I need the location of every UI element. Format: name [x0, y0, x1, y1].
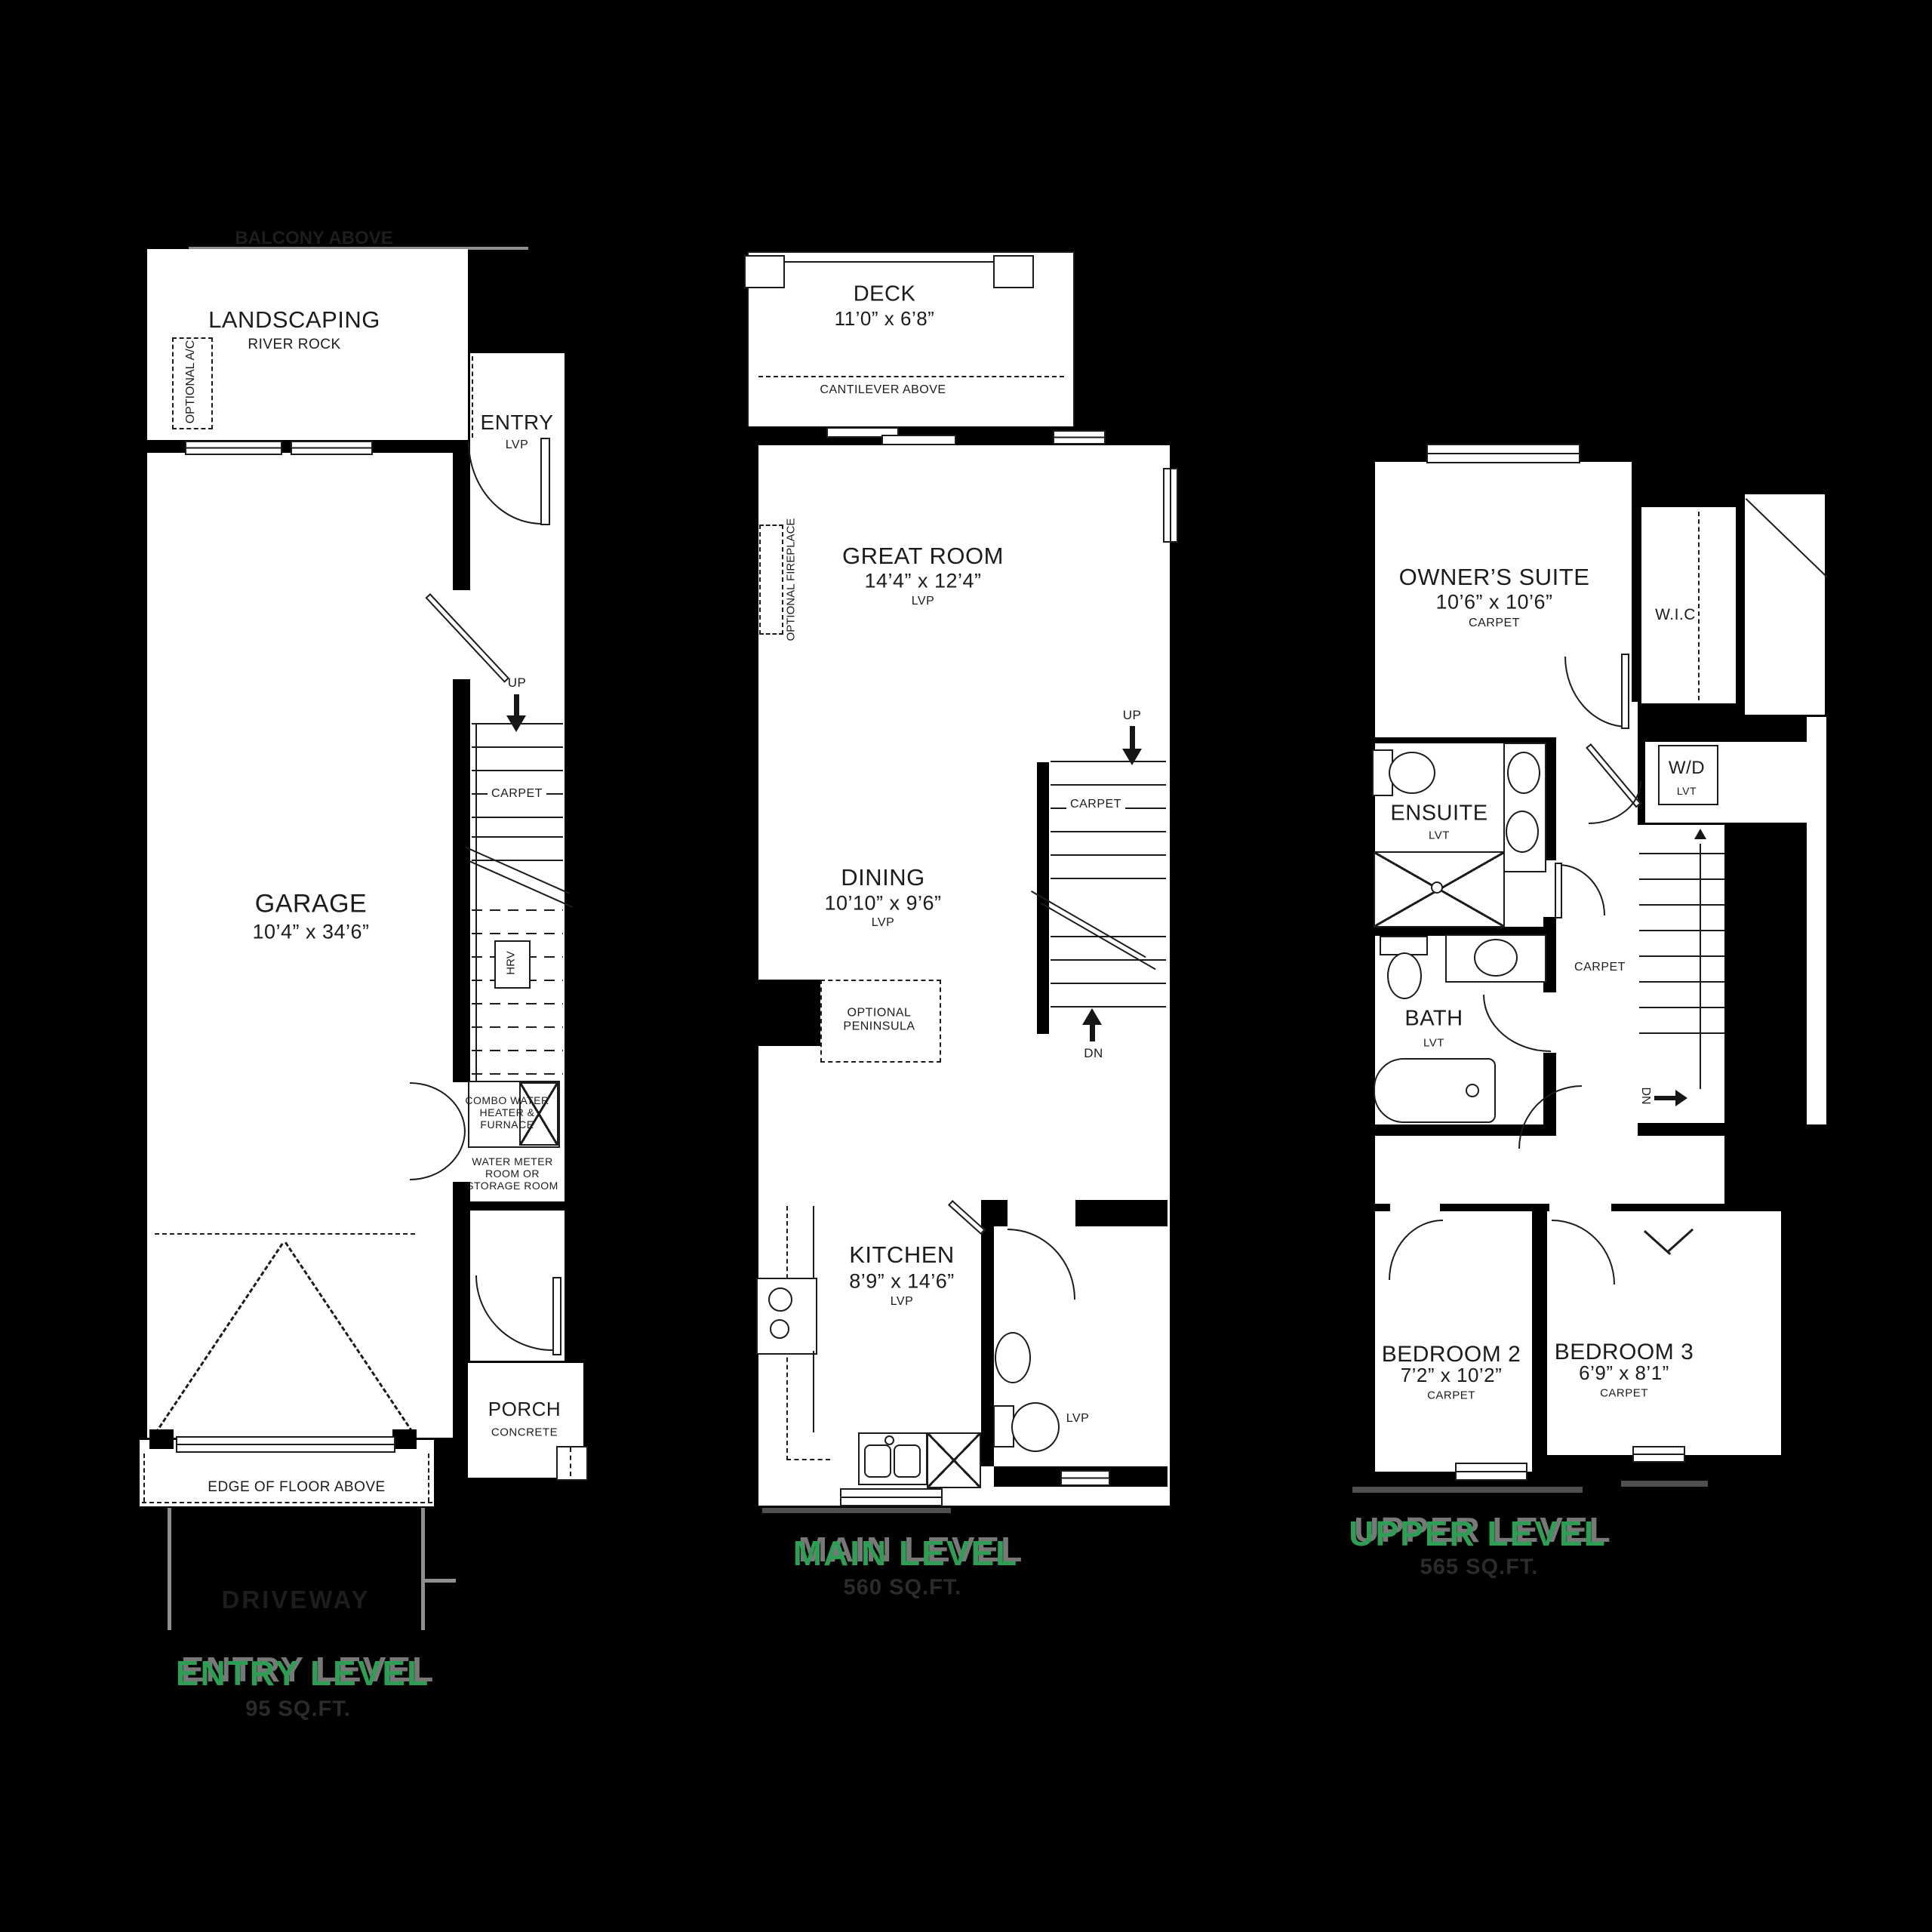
- kitchen-label: KITCHEN: [849, 1241, 955, 1269]
- stair-guide-line: [1700, 844, 1701, 1089]
- cantilever-label: CANTILEVER ABOVE: [820, 383, 946, 397]
- counter-edge: [813, 1351, 814, 1432]
- toilet-bowl: [1011, 1402, 1060, 1452]
- stair-direction-arrow: [1694, 829, 1706, 839]
- bath-label: BATH: [1404, 1006, 1463, 1031]
- stairs-treads: [472, 836, 563, 883]
- porch-door-leaf: [552, 1277, 561, 1355]
- combo-water-heater-label: COMBO WATER HEATER & FURNACE: [465, 1094, 549, 1131]
- entry-level-heading: ENTRY LEVEL: [176, 1653, 429, 1694]
- vanity-sink: [1506, 811, 1539, 853]
- garage-door-jamb: [392, 1429, 417, 1449]
- bedroom3-dims: 6’9” x 8’1”: [1579, 1362, 1669, 1385]
- dn-arrow-stem: [1654, 1096, 1677, 1100]
- stair-rail: [475, 723, 477, 1087]
- apron-dashed-edge: [143, 1454, 145, 1502]
- dn-arrow-head: [1082, 1008, 1102, 1025]
- great-room-floor: LVP: [912, 595, 935, 608]
- wall: [1375, 1204, 1390, 1211]
- range-burner: [768, 1287, 792, 1312]
- optional-fireplace-label: OPTIONAL FIREPLACE: [785, 518, 798, 641]
- stairs-treads: [472, 723, 563, 836]
- window: [185, 441, 282, 455]
- entry-level-sqft: 95 SQ.FT.: [245, 1697, 351, 1722]
- great-room-dims: 14’4” x 12’4”: [864, 569, 981, 592]
- up-label: UP: [508, 675, 527, 691]
- landscaping-label: LANDSCAPING: [208, 306, 380, 334]
- wall: [470, 346, 565, 353]
- kitchen-floor: LVP: [891, 1295, 914, 1309]
- wall: [1075, 1200, 1168, 1226]
- faucet: [884, 1435, 894, 1445]
- dn-arrow-stem: [1090, 1023, 1095, 1041]
- shadow-line: [762, 1508, 951, 1513]
- powder-floor-label: LVP: [1066, 1412, 1090, 1426]
- garage-door-slab: [176, 1436, 395, 1453]
- up-arrow-stem: [1130, 726, 1135, 750]
- entry-label: ENTRY: [481, 411, 554, 435]
- bath-floor: LVT: [1423, 1036, 1444, 1049]
- porch-step-divider: [570, 1447, 571, 1476]
- toilet-bowl: [1389, 752, 1435, 794]
- optional-peninsula-label: OPTIONAL PENINSULA: [843, 1007, 915, 1035]
- garage-label: GARAGE: [255, 889, 367, 918]
- stairs-treads: [1051, 761, 1166, 888]
- driveway-line: [168, 1508, 171, 1630]
- roof-sliver: [1745, 494, 1825, 715]
- bedroom3-floor: CARPET: [1600, 1386, 1648, 1399]
- stairs-treads: [1051, 936, 1166, 1019]
- shower-drain: [1431, 881, 1443, 894]
- sliding-door-panel: [881, 435, 956, 445]
- porch-label: PORCH: [488, 1398, 561, 1421]
- deck-dims-label: 11’0” x 6’8”: [835, 308, 935, 331]
- wall: [981, 1225, 994, 1466]
- range-burner: [770, 1319, 789, 1339]
- stairs-carpet-label: CARPET: [488, 787, 546, 801]
- dining-floor: LVP: [872, 916, 895, 930]
- dn-label: DN: [1638, 1087, 1652, 1104]
- counter-dash-line: [786, 1459, 830, 1460]
- cantilever-dash-line: [758, 376, 1064, 377]
- entry-boundary-dashed: [472, 356, 473, 438]
- deck-label: DECK: [854, 281, 916, 306]
- tub-drain: [1466, 1084, 1479, 1097]
- vanity-sink: [1507, 752, 1540, 794]
- bedroom2-floor: CARPET: [1427, 1389, 1475, 1401]
- wall: [981, 1200, 1008, 1226]
- wall: [1532, 1210, 1547, 1472]
- wall: [1611, 1204, 1783, 1211]
- stairs-treads: [1639, 853, 1724, 1058]
- kitchen-dims: 8’9” x 14’6”: [849, 1269, 955, 1293]
- owners-suite-label: OWNER’S SUITE: [1399, 564, 1590, 591]
- vanity-sink: [1474, 939, 1518, 977]
- porch-steps: [556, 1446, 588, 1481]
- owners-suite-floor: CARPET: [1469, 617, 1520, 630]
- stairs-carpet-label: CARPET: [1066, 798, 1125, 811]
- dining-label: DINING: [841, 864, 925, 891]
- main-level-sqft: 560 SQ.FT.: [844, 1576, 962, 1601]
- edge-of-floor-label: EDGE OF FLOOR ABOVE: [208, 1479, 385, 1496]
- washer-dryer-label: W/D: [1669, 758, 1705, 779]
- garage-dims-label: 10’4” x 34’6”: [252, 920, 369, 943]
- hrv-label: HRV: [505, 951, 518, 974]
- window: [1455, 1463, 1527, 1481]
- wall: [470, 1201, 565, 1211]
- bedroom2-dims: 7’2” x 10’2”: [1401, 1364, 1503, 1387]
- shadow-line: [1352, 1487, 1583, 1493]
- water-meter-label: WATER METER ROOM OR STORAGE ROOM: [466, 1155, 558, 1192]
- owners-door-leaf: [1621, 654, 1629, 729]
- closet-rod-dashed: [1698, 512, 1700, 700]
- balcony-above-label: BALCONY ABOVE: [235, 228, 392, 249]
- dishwasher: [927, 1432, 981, 1488]
- window: [1426, 444, 1580, 463]
- ensuite-floor: LVT: [1429, 829, 1450, 841]
- sink-bowl: [864, 1444, 891, 1478]
- up-arrow-stem: [514, 694, 519, 717]
- great-room-label: GREAT ROOM: [842, 543, 1004, 570]
- optional-ac-label: OPTIONAL A/C: [184, 340, 198, 424]
- upper-level-sqft: 565 SQ.FT.: [1420, 1555, 1539, 1580]
- side-wall-strip: [1807, 717, 1826, 1124]
- deck-post: [744, 255, 785, 288]
- kitchen-wall-stub: [758, 980, 820, 1046]
- upper-level-heading: UPPER LEVEL: [1349, 1513, 1607, 1554]
- hall-carpet-label: CARPET: [1574, 961, 1626, 974]
- optional-fireplace-box: [759, 525, 783, 635]
- ensuite-label: ENSUITE: [1390, 801, 1487, 826]
- apron-dashed-edge: [428, 1454, 429, 1502]
- porch-floor-label: CONCRETE: [491, 1426, 558, 1438]
- wic-label: W.I.C: [1655, 606, 1696, 624]
- stairs-treads-dashed: [472, 909, 563, 1087]
- apron-dashed-bottom: [142, 1502, 432, 1503]
- dn-label: DN: [1084, 1046, 1103, 1061]
- toilet-bowl: [1387, 952, 1422, 999]
- up-label: UP: [1123, 708, 1142, 723]
- floor-plan-canvas: BALCONY ABOVE LANDSCAPING RIVER ROCK OPT…: [0, 0, 1932, 1932]
- powder-sink: [995, 1332, 1031, 1383]
- sink-bowl: [894, 1444, 921, 1478]
- window: [291, 441, 373, 455]
- garage-door-dash-line: [155, 1233, 415, 1235]
- shadow-line: [1621, 1481, 1708, 1487]
- counter-edge: [813, 1206, 814, 1278]
- window: [1053, 430, 1106, 445]
- window: [840, 1488, 943, 1506]
- washer-dryer-floor: LVT: [1677, 785, 1697, 797]
- ensuite-door-leaf: [1555, 863, 1562, 918]
- window: [1163, 468, 1178, 543]
- driveway-tick: [421, 1579, 456, 1583]
- deck-post: [993, 255, 1034, 288]
- dn-arrow-head: [1675, 1090, 1687, 1106]
- dining-dims: 10’10” x 9’6”: [824, 891, 941, 915]
- driveway-line: [421, 1508, 425, 1630]
- river-rock-label: RIVER ROCK: [248, 337, 340, 353]
- driveway-label: DRIVEWAY: [222, 1586, 371, 1614]
- window: [1060, 1470, 1110, 1486]
- deck-rail-line: [785, 261, 993, 263]
- window: [1632, 1446, 1685, 1463]
- garage-door-jamb: [149, 1429, 174, 1449]
- main-level-heading: MAIN LEVEL: [793, 1533, 1019, 1574]
- garage-area: [147, 453, 453, 1438]
- owners-suite-dims: 10’6” x 10’6”: [1435, 590, 1552, 614]
